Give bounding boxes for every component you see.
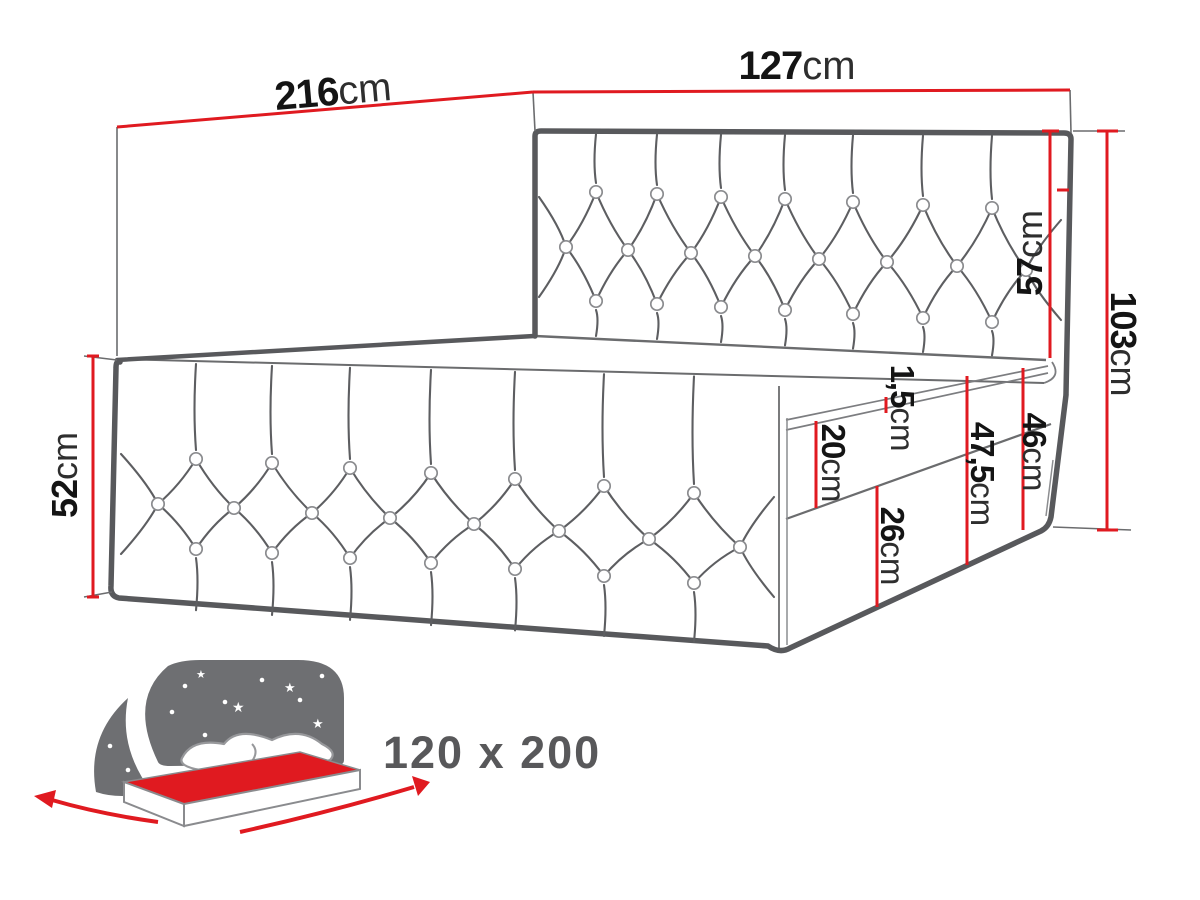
- tuft-button: [813, 253, 825, 265]
- tuft-button: [266, 547, 278, 559]
- tuft-button: [715, 191, 727, 203]
- dim-46-label: 46cm: [1017, 413, 1054, 492]
- tuft-button: [986, 202, 998, 214]
- dim-57-label: 57cm: [1009, 210, 1050, 296]
- tuft-button: [779, 304, 791, 316]
- dim-127-label: 127cm: [738, 44, 855, 88]
- star-icon: ★: [232, 699, 245, 715]
- extension-headboard-right: [1070, 90, 1071, 133]
- bed-dimension-diagram: 216cm 127cm 57cm 103cm 52cm 1,5cm 20cm 4…: [0, 0, 1200, 900]
- dim-52-line: [87, 356, 99, 597]
- tuft-button: [881, 256, 893, 268]
- star-dot: [320, 674, 325, 679]
- tuft-button: [598, 480, 610, 492]
- tuft-button: [688, 577, 700, 589]
- dim-216-127-line: [117, 90, 1070, 127]
- dim-47-5-label: 47,5cm: [965, 422, 1002, 526]
- tuft-button: [509, 563, 521, 575]
- star-icon: ★: [196, 669, 206, 681]
- dim-1-5-label: 1,5cm: [885, 365, 922, 452]
- tuft-button: [688, 487, 700, 499]
- dim-52-label: 52cm: [44, 432, 85, 518]
- dim-103-label: 103cm: [1104, 291, 1145, 396]
- tuft-button: [779, 193, 791, 205]
- tuft-button: [384, 512, 396, 524]
- star-icon: ★: [312, 716, 324, 731]
- dim-26-label: 26cm: [875, 507, 912, 586]
- tuft-button: [553, 525, 565, 537]
- star-dot: [203, 733, 208, 738]
- tuft-button: [468, 518, 480, 530]
- tuft-button: [425, 557, 437, 569]
- bed-size-icon: ★ ★ ★ ★ ★ 120 x 200: [34, 660, 601, 832]
- dim-216-label: 216cm: [273, 65, 393, 119]
- star-dot: [223, 700, 228, 705]
- tuft-button: [228, 502, 240, 514]
- tuft-button: [266, 457, 278, 469]
- tuft-button: [847, 308, 859, 320]
- tuft-button: [917, 199, 929, 211]
- tuft-button: [344, 552, 356, 564]
- tuft-button: [734, 541, 746, 553]
- tuft-button: [715, 301, 727, 313]
- size-badge: 120 x 200: [383, 727, 601, 778]
- width-arrow-head: [34, 790, 56, 808]
- tuft-button: [425, 467, 437, 479]
- star-icon: ★: [284, 680, 296, 695]
- tuft-button: [986, 316, 998, 328]
- dim-20-label: 20cm: [816, 424, 853, 503]
- star-dot: [126, 768, 131, 773]
- tuft-button: [847, 196, 859, 208]
- tuft-button: [590, 186, 602, 198]
- extension-headboard-left: [533, 92, 535, 131]
- tuft-button: [685, 247, 697, 259]
- tuft-button: [917, 312, 929, 324]
- star-dot: [260, 678, 265, 683]
- tuft-button: [651, 298, 663, 310]
- dim-127-line: [533, 90, 1070, 92]
- tuft-button: [152, 498, 164, 510]
- diagram-canvas: 216cm 127cm 57cm 103cm 52cm 1,5cm 20cm 4…: [0, 0, 1200, 900]
- star-icon: ★: [134, 749, 145, 763]
- star-dot: [183, 684, 188, 689]
- mattress-far-edge: [117, 336, 534, 360]
- tuft-button: [344, 462, 356, 474]
- tuft-button: [190, 453, 202, 465]
- tuft-button: [190, 543, 202, 555]
- bed-drawing: [111, 131, 1071, 651]
- length-arrow-head: [412, 776, 430, 796]
- tuft-button: [509, 473, 521, 485]
- tuft-button: [643, 533, 655, 545]
- tuft-button: [622, 244, 634, 256]
- tuft-button: [951, 260, 963, 272]
- extension-bottom-right: [1053, 527, 1131, 530]
- star-dot: [108, 744, 113, 749]
- tuft-button: [598, 570, 610, 582]
- star-dot: [170, 710, 175, 715]
- star-dot: [298, 698, 303, 703]
- tuft-button: [749, 250, 761, 262]
- tuft-button: [560, 241, 572, 253]
- tuft-button: [651, 188, 663, 200]
- tuft-button: [590, 295, 602, 307]
- tuft-button: [306, 507, 318, 519]
